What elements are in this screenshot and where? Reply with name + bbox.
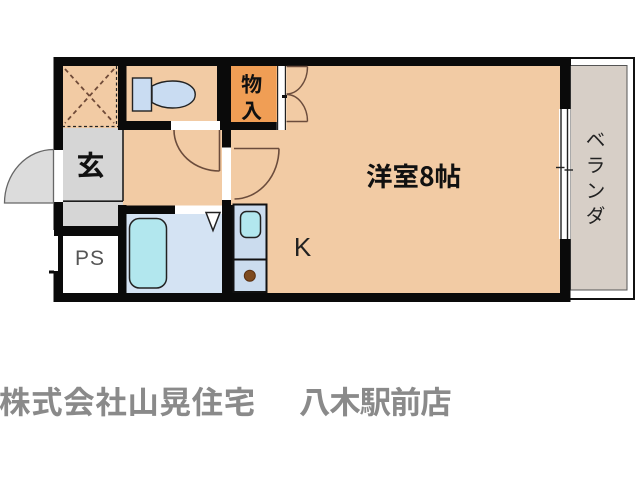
svg-text:K: K — [294, 232, 312, 262]
svg-text:PS: PS — [75, 247, 105, 270]
